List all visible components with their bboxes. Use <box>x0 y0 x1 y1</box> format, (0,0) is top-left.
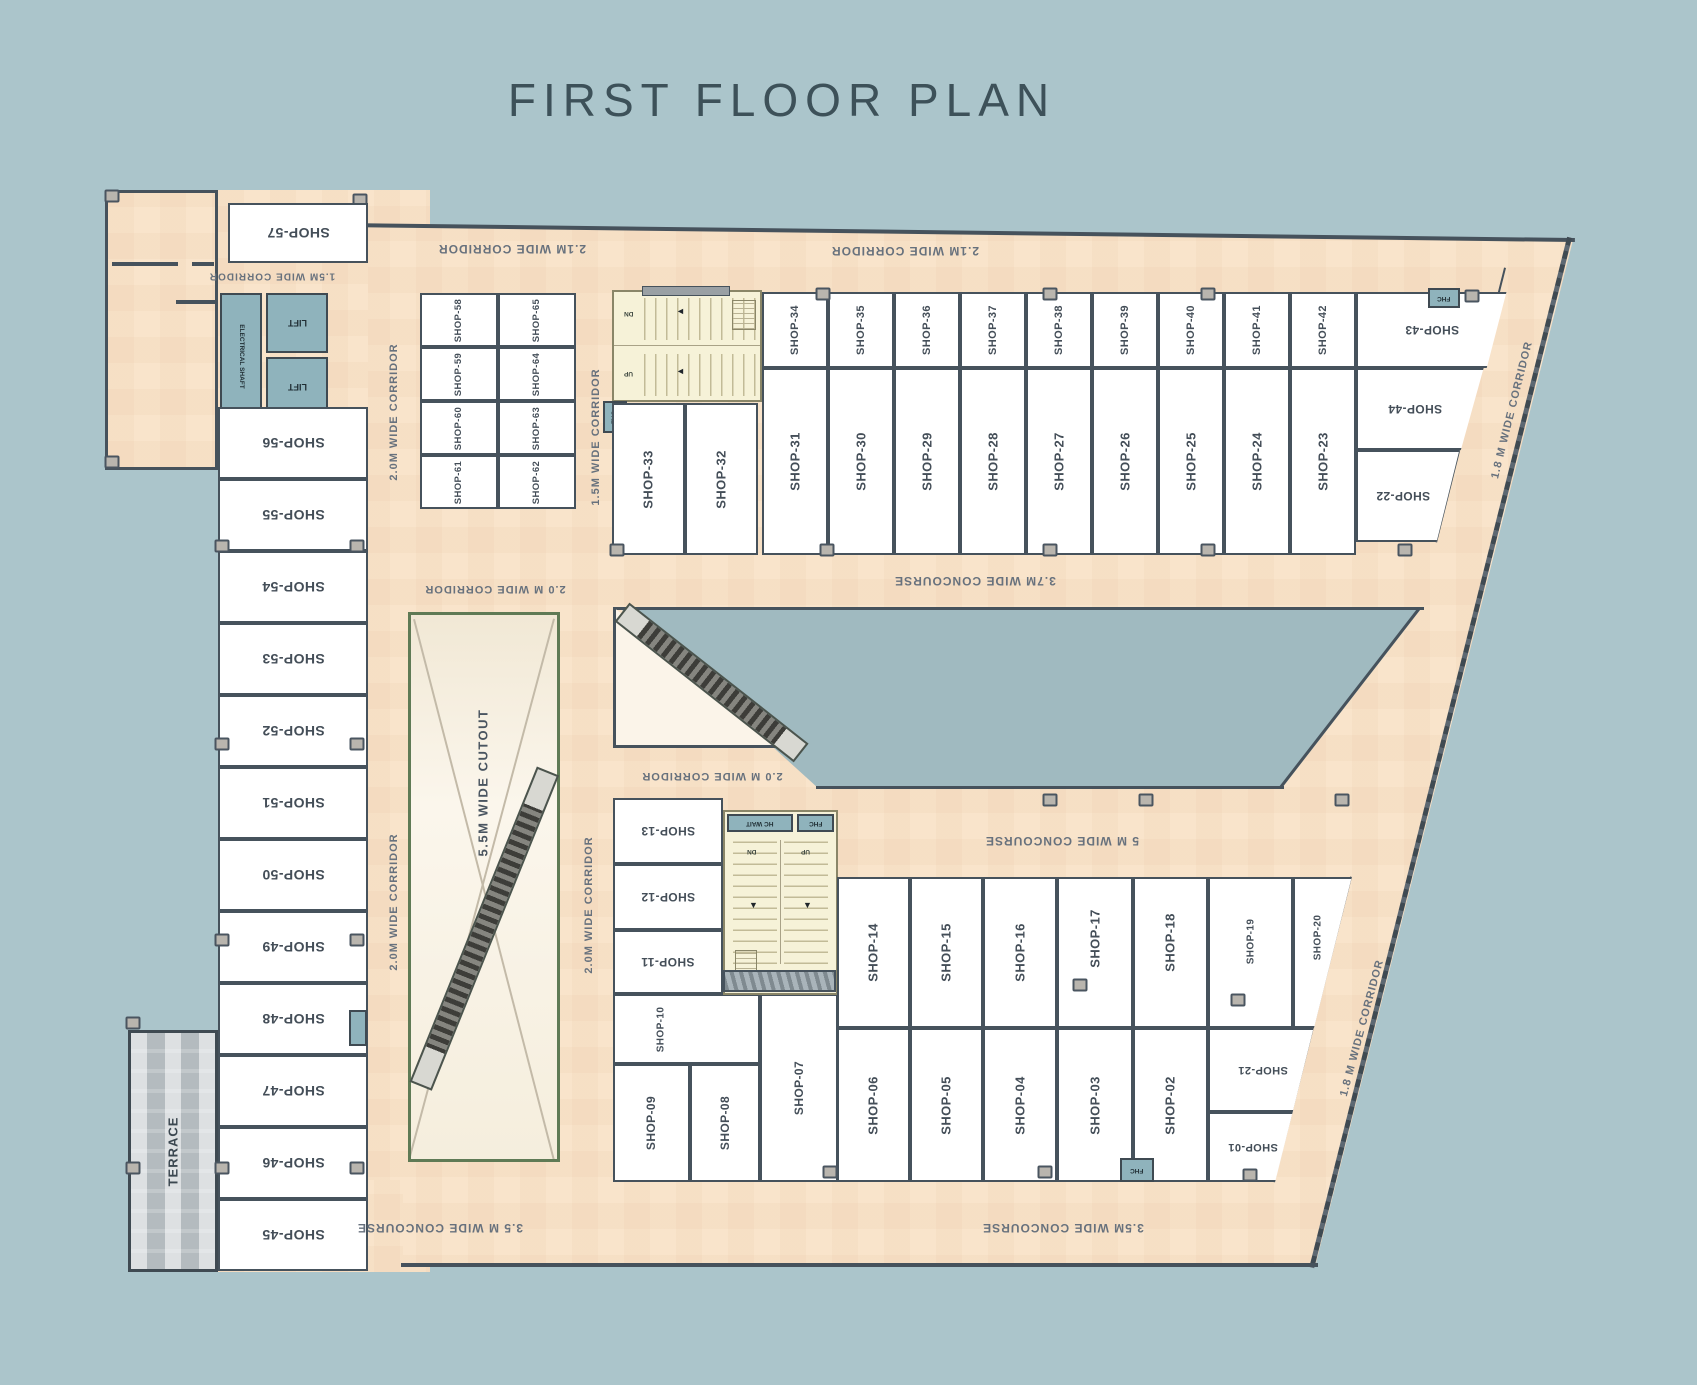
corner-post <box>105 456 120 469</box>
room-label: SHOP-51 <box>262 795 325 811</box>
room-label: SHOP-64 <box>532 352 543 395</box>
room-label: SHOP-14 <box>866 923 881 981</box>
room-label: SHOP-10 <box>655 1006 666 1052</box>
room-shop-48: SHOP-48 <box>218 983 368 1055</box>
room-label: SHOP-58 <box>454 298 465 341</box>
room-shop-23: SHOP-23 <box>1290 368 1356 555</box>
lift-label: LIFT <box>288 382 307 392</box>
room-shop-45: SHOP-45 <box>218 1199 368 1271</box>
room-shop-59: SHOP-59 <box>420 347 498 401</box>
room-label: SHOP-59 <box>454 352 465 395</box>
room-label: SHOP-22 <box>1376 489 1430 503</box>
room-shop-09: SHOP-09 <box>613 1064 690 1182</box>
room-label: SHOP-38 <box>1053 305 1065 355</box>
room-label: SHOP-23 <box>1316 432 1331 490</box>
small-lift-box <box>349 1010 367 1046</box>
hc-wait-label: HC WAIT <box>746 820 773 827</box>
column <box>1243 1169 1258 1182</box>
column <box>350 934 365 947</box>
room-label: SHOP-61 <box>454 460 465 503</box>
page-title: FIRST FLOOR PLAN <box>508 73 1056 127</box>
room-shop-62: SHOP-62 <box>498 455 576 509</box>
room-shop-32: SHOP-32 <box>685 403 758 555</box>
room-label: SHOP-35 <box>855 305 867 355</box>
fhc-label: FHC <box>809 820 822 827</box>
room-shop-38: SHOP-38 <box>1026 292 1092 368</box>
room-label: SHOP-49 <box>262 939 325 955</box>
room-label: SHOP-25 <box>1184 432 1199 490</box>
room-shop-41: SHOP-41 <box>1224 292 1290 368</box>
room-shop-06: SHOP-06 <box>837 1028 910 1182</box>
room-shop-60: SHOP-60 <box>420 401 498 455</box>
label-concourse-5: 5 M WIDE CONCOURSE <box>985 834 1139 848</box>
room-shop-34: SHOP-34 <box>762 292 828 368</box>
room-label: SHOP-41 <box>1251 305 1263 355</box>
room-label: SHOP-47 <box>262 1083 325 1099</box>
column <box>823 1166 838 1179</box>
stair-divider-line <box>780 840 781 964</box>
room-label: SHOP-17 <box>1088 909 1103 967</box>
toilet-inner-wall-b <box>192 262 214 266</box>
room-shop-55: SHOP-55 <box>218 479 368 551</box>
label-corridor-20-below-triangle: 2.0 M WIDE CORRIDOR <box>641 770 782 782</box>
room-label: SHOP-44 <box>1388 402 1442 416</box>
room-shop-12: SHOP-12 <box>613 864 723 930</box>
stairs-arrow-icon: ▼ <box>803 900 812 910</box>
room-label: SHOP-40 <box>1185 305 1197 355</box>
label-corridor-20-leftwing-upper: 2.0M WIDE CORRIDOR <box>388 343 400 480</box>
column <box>1043 288 1058 301</box>
room-label: SHOP-13 <box>641 824 695 838</box>
room-shop-40: SHOP-40 <box>1158 292 1224 368</box>
room-label: SHOP-53 <box>262 651 325 667</box>
room-label: SHOP-52 <box>262 723 325 739</box>
room-label: SHOP-46 <box>262 1155 325 1171</box>
label-corridor-20-above-cutout: 2.0 M WIDE CORRIDOR <box>424 583 565 595</box>
stairs-up-label: UP <box>624 370 633 377</box>
room-shop-47: SHOP-47 <box>218 1055 368 1127</box>
fhc-box-top-right: FHC <box>1428 288 1460 308</box>
room-label: SHOP-32 <box>714 450 729 508</box>
corner-post <box>126 1162 141 1175</box>
fhc-box-bottom: FHC <box>1120 1158 1154 1182</box>
stairs-bottom-wing: HC WAIT FHC DN UP ▼ ▼ <box>723 810 838 995</box>
room-label: SHOP-55 <box>262 507 325 523</box>
room-shop-30: SHOP-30 <box>828 368 894 555</box>
room-label: SHOP-30 <box>854 432 869 490</box>
room-label: SHOP-42 <box>1317 305 1329 355</box>
corner-post <box>126 1017 141 1030</box>
column <box>816 288 831 301</box>
column <box>1335 794 1350 807</box>
stairs-arrow-icon: ◄ <box>676 306 685 316</box>
label-corridor-21-right: 2.1M WIDE CORRIDOR <box>831 244 979 258</box>
room-shop-54: SHOP-54 <box>218 551 368 623</box>
room-shop-18: SHOP-18 <box>1133 877 1208 1028</box>
column <box>1465 290 1480 303</box>
stairs-top-wing: DN ◄ UP ◄ <box>612 290 762 402</box>
label-corridor-15-topleft: 1.5M WIDE CORRIDOR <box>209 271 335 282</box>
toilet-inner-wall-a <box>112 262 178 266</box>
room-label: SHOP-24 <box>1250 432 1265 490</box>
room-shop-05: SHOP-05 <box>910 1028 983 1182</box>
room-label: SHOP-26 <box>1118 432 1133 490</box>
room-shop-37: SHOP-37 <box>960 292 1026 368</box>
room-shop-14: SHOP-14 <box>837 877 910 1028</box>
column <box>820 544 835 557</box>
column <box>1201 288 1216 301</box>
column <box>610 544 625 557</box>
room-shop-39: SHOP-39 <box>1092 292 1158 368</box>
room-label: SHOP-05 <box>939 1076 954 1134</box>
room-label: SHOP-28 <box>986 432 1001 490</box>
stair-landing-line <box>614 345 760 346</box>
room-label: SHOP-50 <box>262 867 325 883</box>
outer-wall-bottom <box>401 1263 1318 1267</box>
room-label: SHOP-45 <box>262 1227 325 1243</box>
room-shop-58: SHOP-58 <box>420 293 498 347</box>
room-label: SHOP-08 <box>718 1096 732 1150</box>
void-bottom-wall <box>816 786 1284 789</box>
travelator-band <box>723 970 836 992</box>
label-concourse-35-right: 3.5M WIDE CONCOURSE <box>982 1221 1144 1235</box>
fhc-box-stairs: FHC <box>797 814 834 832</box>
label-corridor-15-mid: 1.5M WIDE CORRIDOR <box>590 368 602 505</box>
column <box>350 540 365 553</box>
room-shop-24: SHOP-24 <box>1224 368 1290 555</box>
room-shop-04: SHOP-04 <box>983 1028 1057 1182</box>
column <box>1038 1166 1053 1179</box>
label-corridor-21-left: 2.1M WIDE CORRIDOR <box>438 242 586 256</box>
room-label: SHOP-37 <box>987 305 999 355</box>
room-shop-33: SHOP-33 <box>612 403 685 555</box>
column <box>1073 979 1088 992</box>
room-label: SHOP-43 <box>1405 323 1459 337</box>
room-label: SHOP-48 <box>262 1011 325 1027</box>
corner-post <box>105 190 120 203</box>
room-shop-16: SHOP-16 <box>983 877 1057 1028</box>
room-shop-19: SHOP-19 <box>1208 877 1293 1028</box>
column <box>1398 544 1413 557</box>
room-shop-53: SHOP-53 <box>218 623 368 695</box>
fhc-label: FHC <box>1437 295 1450 302</box>
room-shop-29: SHOP-29 <box>894 368 960 555</box>
room-label: SHOP-06 <box>866 1076 881 1134</box>
room-label: SHOP-34 <box>789 305 801 355</box>
electrical-shaft-label: ELECTRICAL SHAFT <box>238 324 245 389</box>
room-shop-64: SHOP-64 <box>498 347 576 401</box>
room-shop-15: SHOP-15 <box>910 877 983 1028</box>
room-label: SHOP-18 <box>1163 913 1178 971</box>
stairs-up-label: UP <box>801 848 810 855</box>
room-shop-10: SHOP-10 <box>613 994 760 1064</box>
stair-note-box <box>732 300 756 330</box>
room-shop-52: SHOP-52 <box>218 695 368 767</box>
hc-wait-box: HC WAIT <box>727 814 793 832</box>
room-shop-49: SHOP-49 <box>218 911 368 983</box>
room-label: SHOP-19 <box>1245 919 1256 965</box>
room-shop-26: SHOP-26 <box>1092 368 1158 555</box>
room-label: SHOP-20 <box>1313 915 1324 961</box>
room-shop-27: SHOP-27 <box>1026 368 1092 555</box>
column <box>1231 994 1246 1007</box>
room-shop-65: SHOP-65 <box>498 293 576 347</box>
room-label: SHOP-09 <box>645 1096 659 1150</box>
room-shop-56: SHOP-56 <box>218 407 368 479</box>
room-shop-51: SHOP-51 <box>218 767 368 839</box>
room-label: SHOP-04 <box>1013 1076 1028 1134</box>
column <box>1201 544 1216 557</box>
room-label: SHOP-27 <box>1052 432 1067 490</box>
room-shop-35: SHOP-35 <box>828 292 894 368</box>
floor-plan-page: { "title": "FIRST FLOOR PLAN", "rooms": … <box>0 0 1697 1385</box>
column <box>215 1162 230 1175</box>
stairs-arrow-icon: ◄ <box>676 366 685 376</box>
triangle-left-wall <box>613 607 616 748</box>
lift-label: LIFT <box>288 318 307 328</box>
room-label: SHOP-15 <box>939 923 954 981</box>
room-label: SHOP-54 <box>262 579 325 595</box>
lift-upper: LIFT <box>266 293 328 353</box>
column <box>215 738 230 751</box>
room-label: SHOP-02 <box>1163 1076 1178 1134</box>
triangle-bottom-wall <box>613 745 795 748</box>
column <box>1043 544 1058 557</box>
room-shop-42: SHOP-42 <box>1290 292 1356 368</box>
room-shop-57: SHOP-57 <box>228 203 368 263</box>
room-label: SHOP-01 <box>1228 1141 1278 1153</box>
stair-entry-bar <box>642 286 730 296</box>
stairs-arrow-icon: ▼ <box>749 900 758 910</box>
room-shop-63: SHOP-63 <box>498 401 576 455</box>
room-label: SHOP-29 <box>920 432 935 490</box>
room-shop-31: SHOP-31 <box>762 368 828 555</box>
room-label: SHOP-16 <box>1013 923 1028 981</box>
room-shop-61: SHOP-61 <box>420 455 498 509</box>
terrace-label: TERRACE <box>166 1116 181 1186</box>
room-label: SHOP-65 <box>532 298 543 341</box>
room-label: SHOP-36 <box>921 305 933 355</box>
terrace: TERRACE <box>128 1030 218 1272</box>
toilet-inner-wall-c <box>176 300 216 304</box>
stair-flight <box>644 354 756 396</box>
room-label: SHOP-56 <box>262 435 325 451</box>
column <box>215 934 230 947</box>
column <box>350 738 365 751</box>
room-shop-17: SHOP-17 <box>1057 877 1133 1028</box>
column <box>350 1162 365 1175</box>
room-shop-36: SHOP-36 <box>894 292 960 368</box>
room-label: SHOP-11 <box>641 955 695 969</box>
room-shop-08: SHOP-08 <box>690 1064 760 1182</box>
room-shop-28: SHOP-28 <box>960 368 1026 555</box>
label-corridor-20-right-of-cutout: 2.0M WIDE CORRIDOR <box>583 836 595 973</box>
room-label: SHOP-63 <box>532 406 543 449</box>
label-concourse-37: 3.7M WIDE CONCOURSE <box>894 574 1056 588</box>
room-label: SHOP-21 <box>1238 1064 1288 1076</box>
column <box>215 540 230 553</box>
room-label: SHOP-62 <box>532 460 543 503</box>
label-corridor-20-leftwing-lower: 2.0M WIDE CORRIDOR <box>388 833 400 970</box>
room-shop-11: SHOP-11 <box>613 930 723 994</box>
stairs-dn-label: DN <box>624 310 633 317</box>
room-label: SHOP-39 <box>1119 305 1131 355</box>
toilet-block-base <box>105 190 218 470</box>
room-label: SHOP-03 <box>1088 1076 1103 1134</box>
room-shop-46: SHOP-46 <box>218 1127 368 1199</box>
room-label: SHOP-33 <box>641 450 656 508</box>
column <box>1139 794 1154 807</box>
void-top-wall <box>616 607 1424 610</box>
electrical-shaft-room: ELECTRICAL SHAFT <box>220 293 262 420</box>
room-label: SHOP-12 <box>641 890 695 904</box>
room-shop-50: SHOP-50 <box>218 839 368 911</box>
room-shop-13: SHOP-13 <box>613 798 723 864</box>
room-shop-07: SHOP-07 <box>760 994 838 1182</box>
room-shop-25: SHOP-25 <box>1158 368 1224 555</box>
room-label: SHOP-57 <box>267 225 330 241</box>
fhc-label: FHC <box>1130 1167 1143 1174</box>
room-label: SHOP-31 <box>788 432 803 490</box>
stairs-dn-label: DN <box>747 848 756 855</box>
room-label: SHOP-07 <box>792 1061 806 1115</box>
room-label: SHOP-60 <box>454 406 465 449</box>
label-concourse-35-left: 3.5 M WIDE CONCOURSE <box>357 1221 523 1235</box>
cutout-label: 5.5M WIDE CUTOUT <box>476 653 491 913</box>
column <box>1043 794 1058 807</box>
